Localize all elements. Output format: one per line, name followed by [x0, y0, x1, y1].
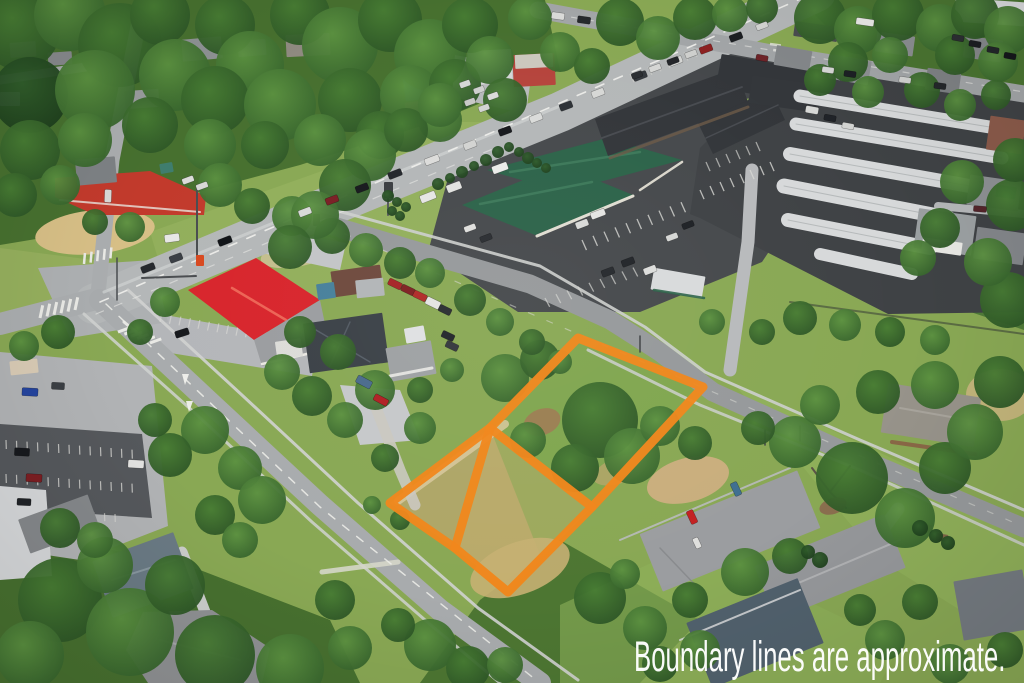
disclaimer-text: Boundary lines are approximate. [634, 634, 1005, 681]
aerial-photo: Boundary lines are approximate. [0, 0, 1024, 683]
aerial-scene [0, 0, 1024, 683]
